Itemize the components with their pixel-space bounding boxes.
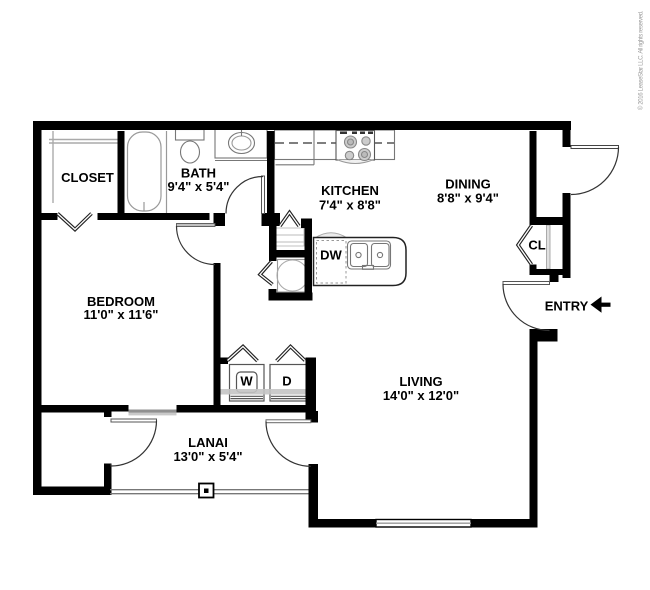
svg-text:9'4" x 5'4": 9'4" x 5'4" bbox=[168, 179, 230, 194]
svg-text:11'0" x 11'6": 11'0" x 11'6" bbox=[84, 307, 159, 322]
svg-text:KITCHEN: KITCHEN bbox=[321, 183, 379, 198]
svg-text:14'0" x 12'0": 14'0" x 12'0" bbox=[383, 388, 459, 403]
svg-text:DW: DW bbox=[320, 248, 342, 263]
svg-text:8'8" x 9'4": 8'8" x 9'4" bbox=[437, 191, 499, 206]
svg-text:D: D bbox=[282, 374, 291, 389]
svg-text:ENTRY: ENTRY bbox=[545, 299, 589, 314]
svg-text:CLOSET: CLOSET bbox=[61, 170, 114, 185]
svg-text:CL: CL bbox=[528, 238, 545, 253]
svg-text:DINING: DINING bbox=[445, 177, 491, 192]
svg-text:© 2016 LeaseStar LLC. All righ: © 2016 LeaseStar LLC. All rights reserve… bbox=[637, 10, 644, 110]
svg-text:13'0" x 5'4": 13'0" x 5'4" bbox=[173, 449, 242, 464]
svg-text:LIVING: LIVING bbox=[399, 374, 442, 389]
svg-text:7'4" x 8'8": 7'4" x 8'8" bbox=[319, 198, 381, 213]
svg-text:LANAI: LANAI bbox=[188, 435, 228, 450]
svg-text:W: W bbox=[240, 374, 253, 389]
